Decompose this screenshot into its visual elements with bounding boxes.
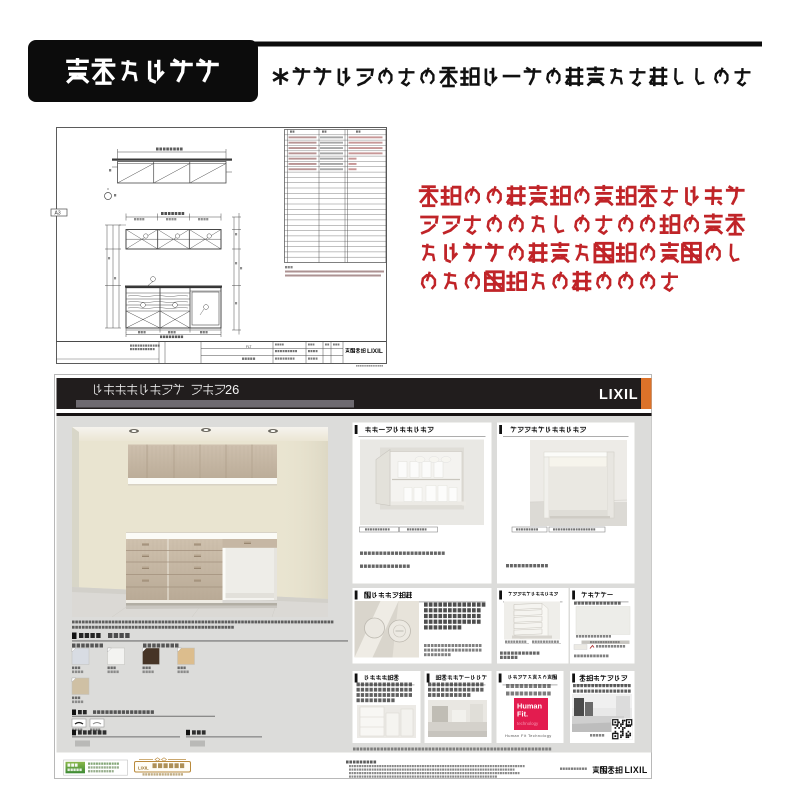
svg-text:LIXIL: LIXIL <box>138 766 149 771</box>
svg-text:LIXIL: LIXIL <box>367 348 383 355</box>
svg-text:Fit.: Fit. <box>517 710 528 719</box>
svg-text:technology: technology <box>517 721 539 726</box>
svg-text:FLT: FLT <box>246 345 251 349</box>
svg-text:LIXIL: LIXIL <box>625 765 648 775</box>
svg-text:LIXIL: LIXIL <box>599 387 638 403</box>
svg-text:A3: A3 <box>55 211 61 217</box>
svg-text:Human Fit Technology: Human Fit Technology <box>505 733 552 738</box>
svg-text:26: 26 <box>225 382 239 397</box>
